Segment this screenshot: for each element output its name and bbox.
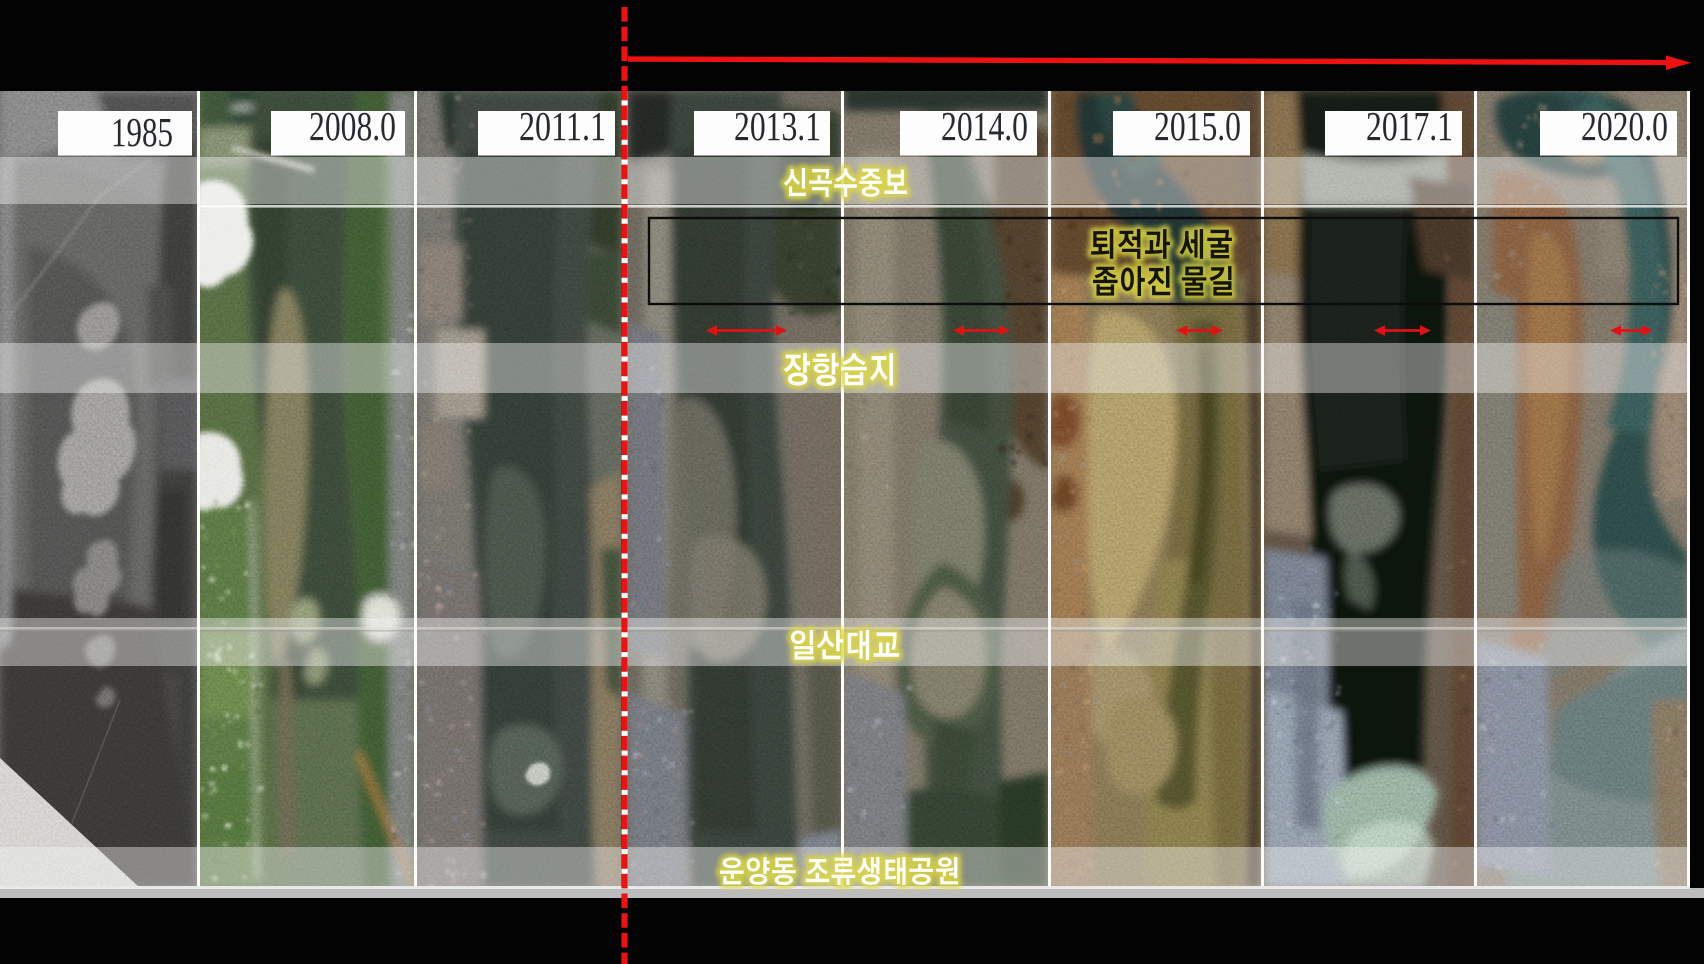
svg-text:2011.1: 2011.1: [519, 103, 606, 149]
svg-text:2013.1: 2013.1: [734, 103, 821, 149]
svg-text:2008.0: 2008.0: [309, 103, 396, 149]
svg-text:2014.0: 2014.0: [941, 103, 1028, 149]
svg-text:2020.0: 2020.0: [1581, 103, 1668, 149]
svg-text:2015.0: 2015.0: [1154, 103, 1241, 149]
svg-text:2017.1: 2017.1: [1366, 103, 1453, 149]
svg-text:1985: 1985: [111, 109, 173, 155]
